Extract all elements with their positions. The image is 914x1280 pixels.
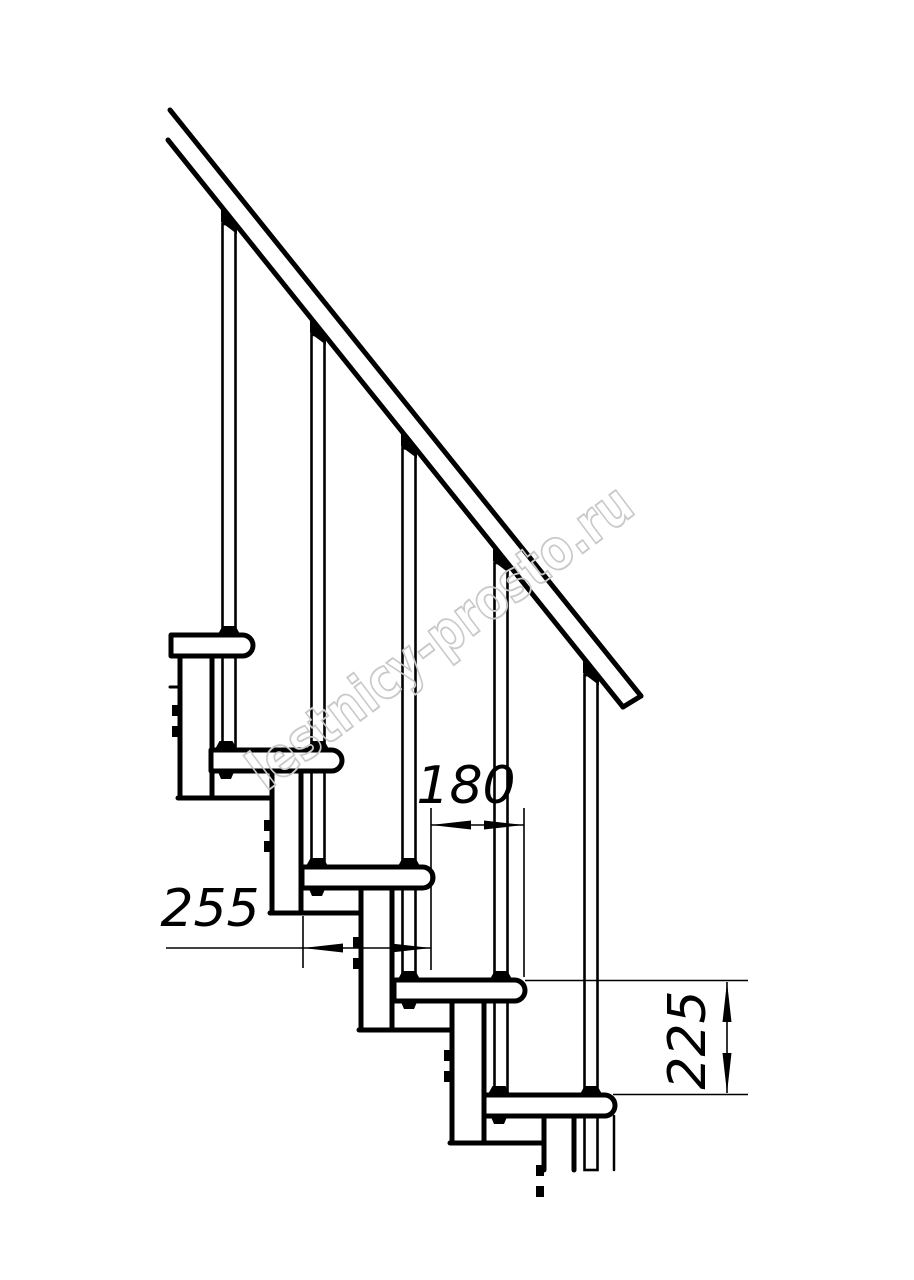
bolt [444, 1071, 452, 1082]
dimension-label: 255 [160, 879, 259, 939]
bolt [353, 937, 361, 948]
tread [171, 635, 253, 656]
bolt [444, 1050, 452, 1061]
dimension-label: 180 [416, 756, 515, 816]
bolt [536, 1186, 544, 1197]
baluster [495, 563, 508, 1098]
baluster [223, 224, 236, 753]
dimension-label: 225 [658, 990, 718, 1089]
tread [394, 980, 525, 1001]
dimension-225: 225 [525, 981, 748, 1095]
tread [484, 1095, 615, 1116]
staircase-drawing-svg: 180255225lestnicy-prosto.ru [0, 0, 914, 1280]
staircase-technical-drawing: 180255225lestnicy-prosto.ru [0, 0, 914, 1280]
bolt [536, 1165, 544, 1176]
bolt [172, 726, 180, 737]
bolt [353, 958, 361, 969]
bolt [264, 841, 272, 852]
baluster [403, 448, 416, 983]
baluster [312, 335, 325, 870]
bolt [264, 820, 272, 831]
tread [302, 867, 433, 888]
bolt [172, 705, 180, 716]
